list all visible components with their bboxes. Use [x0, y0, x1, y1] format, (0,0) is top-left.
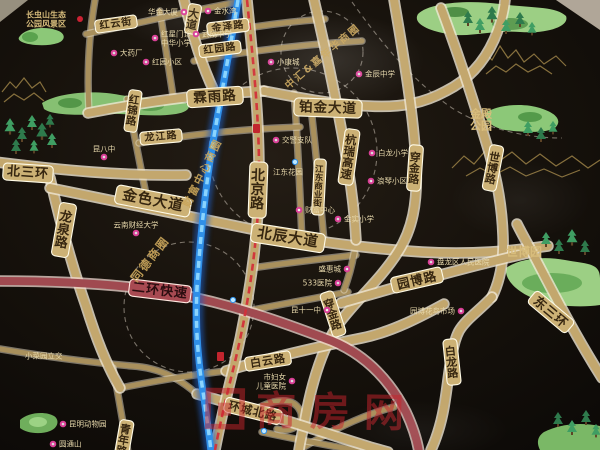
- metro-station-badge: [217, 352, 224, 361]
- svg-text:财富中心: 财富中心: [305, 205, 335, 215]
- metro-station-badge: [253, 124, 260, 133]
- poi-marker: 江东花园: [273, 167, 303, 177]
- park-label-jindian-line2: 公园: [470, 120, 492, 133]
- svg-text:昆八中: 昆八中: [93, 144, 116, 154]
- road-label-beisanhuan: 北三环: [2, 163, 53, 183]
- svg-text:霖雨路: 霖雨路: [193, 87, 238, 107]
- park-label-shiboyuan: 世博园: [506, 244, 542, 259]
- svg-text:市妇女: 市妇女: [264, 372, 287, 382]
- road-label-linyu: 霖雨路: [186, 86, 243, 108]
- svg-text:红园小区: 红园小区: [152, 57, 182, 67]
- svg-text:园博花鸟市场: 园博花鸟市场: [410, 306, 455, 316]
- glare-highlight: [235, 12, 425, 108]
- park-label-changchongshan-line1: 长虫山生态: [26, 10, 66, 20]
- svg-text:昆十一中: 昆十一中: [291, 305, 321, 315]
- svg-text:云南财经大学: 云南财经大学: [114, 220, 159, 230]
- svg-text:浪琴小区: 浪琴小区: [377, 176, 407, 186]
- area-map-photo: 北三环 金色大道 北辰大道 霖雨路 铂金大道 红云街 金泽路 红园路 龙江路 二…: [0, 0, 600, 450]
- svg-text:江东花园: 江东花园: [273, 167, 303, 177]
- park-label-jindian-line1: 金殿: [469, 107, 493, 121]
- svg-text:小菜园立交: 小菜园立交: [25, 351, 63, 361]
- svg-text:穿金路: 穿金路: [407, 149, 422, 186]
- svg-text:盘龙区人民医院: 盘龙区人民医院: [437, 257, 490, 267]
- road-label-chuanjin-north: 穿金路: [406, 145, 423, 192]
- svg-text:533医院: 533医院: [303, 278, 333, 288]
- svg-text:白龙小学: 白龙小学: [378, 148, 408, 158]
- map-board: 北三环 金色大道 北辰大道 霖雨路 铂金大道 红云街 金泽路 红园路 龙江路 二…: [0, 0, 600, 450]
- park-marker-icon: [77, 16, 83, 22]
- svg-text:北三环: 北三环: [7, 164, 50, 182]
- road-label-beijing: 北京路: [248, 162, 268, 219]
- poi-marker: 小菜园立交: [25, 351, 63, 361]
- svg-text:圆通山: 圆通山: [59, 439, 82, 449]
- svg-text:大药厂: 大药厂: [120, 48, 143, 58]
- svg-text:北京路: 北京路: [250, 168, 267, 212]
- svg-text:昆明动物园: 昆明动物园: [69, 419, 107, 429]
- svg-text:盛惠城: 盛惠城: [319, 264, 342, 274]
- svg-text:交警支队: 交警支队: [282, 135, 312, 145]
- poi-marker: 盘龙区人民医院: [429, 257, 490, 267]
- svg-text:金实小学: 金实小学: [344, 214, 374, 224]
- park-label-changchongshan-line2: 公园风景区: [26, 19, 66, 29]
